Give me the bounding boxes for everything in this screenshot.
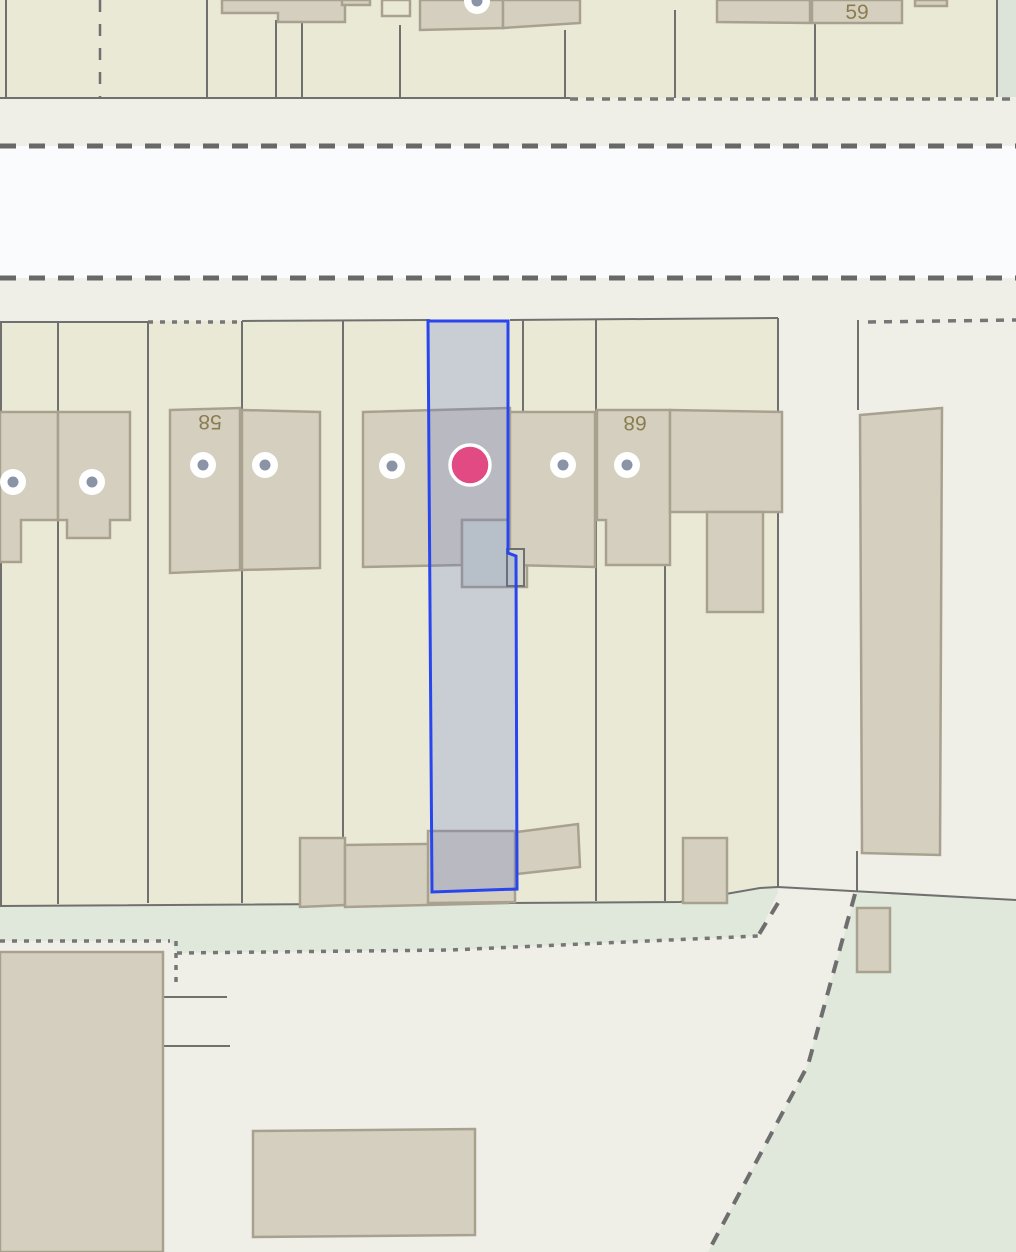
building-footprint	[342, 0, 370, 5]
house-number-label: 68	[623, 411, 646, 434]
address-point-dot[interactable]	[550, 452, 576, 478]
building-footprint	[707, 512, 763, 612]
green-strip-top-right	[997, 0, 1016, 97]
house-number-label: 59	[845, 1, 868, 24]
map-canvas[interactable]: 58 68 59	[0, 0, 1016, 1252]
building-footprint	[517, 824, 580, 874]
building-footprint	[860, 408, 942, 855]
selected-location-marker[interactable]	[450, 445, 490, 485]
road-surface	[0, 146, 1016, 278]
building-footprint	[242, 410, 320, 570]
building-footprint	[915, 0, 947, 6]
building-footprint	[857, 908, 890, 972]
building-footprint	[420, 0, 503, 30]
building-footprint	[670, 410, 782, 512]
parcel-block-south	[0, 318, 778, 906]
building-footprint	[717, 0, 810, 23]
building-footprint	[683, 838, 727, 903]
building-footprint	[253, 1129, 475, 1237]
address-point-dot[interactable]	[614, 452, 640, 478]
building-footprint	[0, 952, 163, 1252]
address-point-dot[interactable]	[252, 452, 278, 478]
building-footprint	[510, 412, 595, 567]
map-viewport[interactable]: 58 68 59	[0, 0, 1016, 1252]
address-point-dot[interactable]	[379, 453, 405, 479]
building-footprint	[300, 838, 345, 907]
address-point-dot[interactable]	[79, 469, 105, 495]
address-point-dot[interactable]	[0, 469, 26, 495]
house-number-label: 58	[198, 410, 221, 433]
building-footprint	[503, 0, 580, 28]
selected-parcel-outline[interactable]	[428, 321, 517, 892]
building-footprint	[382, 0, 410, 16]
address-point-dot[interactable]	[190, 452, 216, 478]
